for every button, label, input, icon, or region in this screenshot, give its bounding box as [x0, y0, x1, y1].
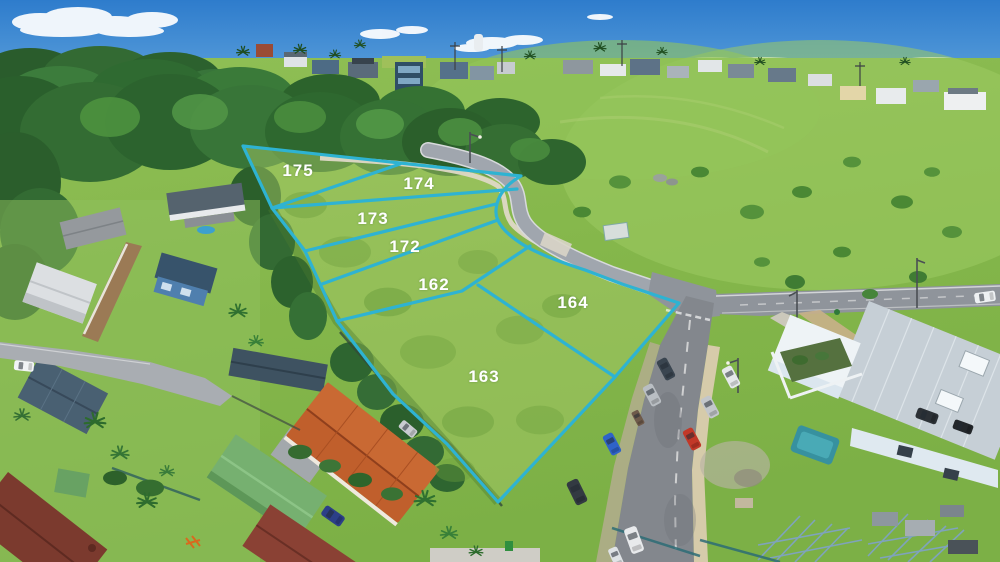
lot-label-163: 163 [468, 367, 499, 387]
lot-label-174: 174 [403, 174, 434, 194]
lot-label-175: 175 [282, 161, 313, 181]
lot-label-172: 172 [389, 237, 420, 257]
aerial-photo-canvas [0, 0, 1000, 562]
lot-label-164: 164 [557, 293, 588, 313]
lot-label-173: 173 [357, 209, 388, 229]
lot-label-162: 162 [418, 275, 449, 295]
aerial-photo: 175 174 173 172 162 164 163 [0, 0, 1000, 562]
